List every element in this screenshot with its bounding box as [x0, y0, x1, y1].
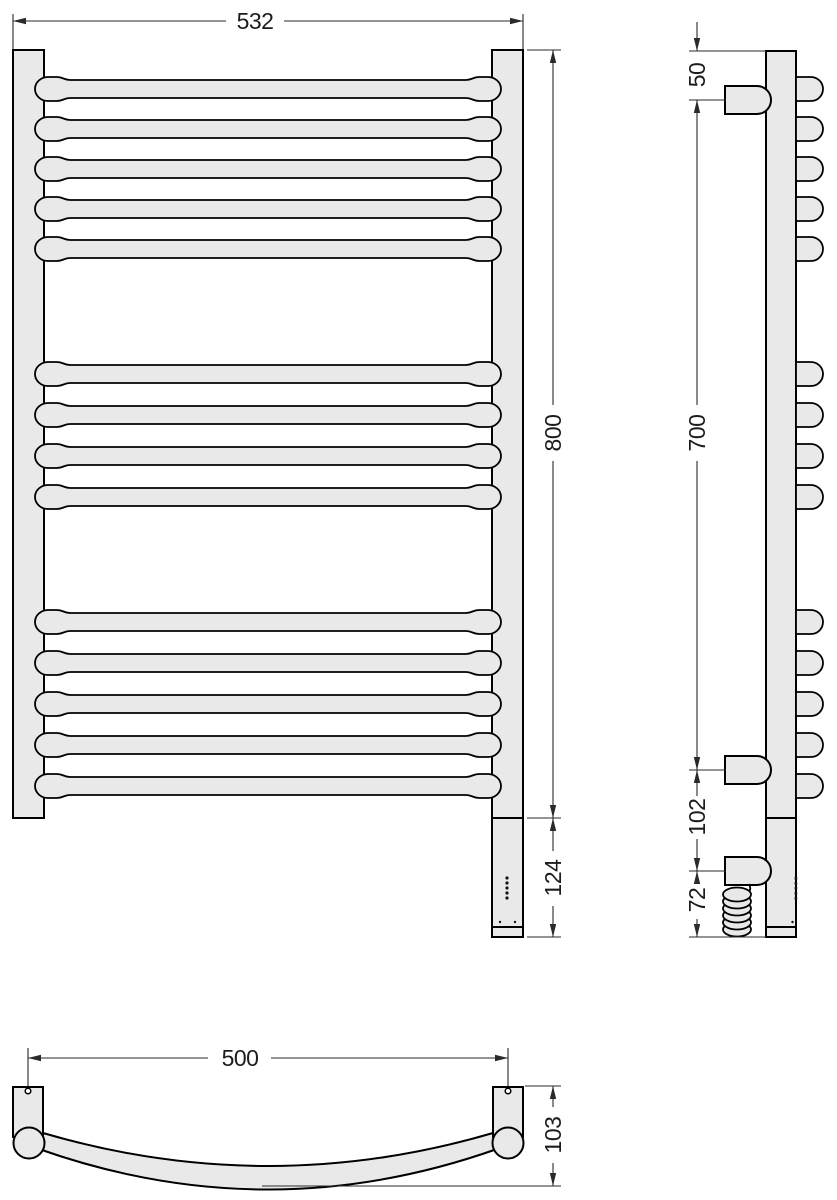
dim-overall-height-label: 800 [540, 415, 566, 452]
dimension-arrow [13, 18, 26, 24]
dim-mounting-span-label: 500 [222, 1045, 259, 1071]
towel-bar-end [796, 610, 823, 634]
dimension-arrow [694, 100, 700, 113]
dimension-arrow [550, 1086, 556, 1099]
dim-bracket-to-bracket-label: 700 [684, 415, 710, 452]
towel-bar-end [796, 77, 823, 101]
dimension-arrow [694, 757, 700, 770]
dimension-arrows [13, 18, 700, 1186]
cable-coil-loop [723, 888, 751, 902]
towel-bar [35, 692, 501, 716]
towel-bar [35, 197, 501, 221]
towel-bar-end [796, 157, 823, 181]
towel-bar [35, 157, 501, 181]
screw-dot [791, 921, 793, 923]
dimension-arrow [495, 1055, 508, 1061]
led-dot-edge [795, 897, 798, 900]
towel-bar-end [796, 197, 823, 221]
led-dot [505, 881, 508, 884]
dimension-arrow [550, 818, 556, 831]
bottom-view [13, 1087, 524, 1190]
towel-bar-end [796, 362, 823, 386]
led-dot-edge [795, 882, 798, 885]
dim-depth-label: 103 [540, 1117, 566, 1154]
towel-bar [35, 774, 501, 798]
technical-drawing: 532 800 124 50 700 102 [0, 0, 837, 1200]
dimension-overall-width: 532 [13, 8, 523, 49]
towel-bar [35, 610, 501, 634]
dimension-arrow [694, 858, 700, 871]
led-dot [505, 896, 508, 899]
towel-bar [35, 733, 501, 757]
wall-bracket [725, 857, 771, 885]
dimension-arrow [550, 50, 556, 63]
side-rail [766, 51, 796, 937]
towel-bar-end [796, 403, 823, 427]
led-dot-edge [795, 887, 798, 890]
dimension-arrow [550, 1173, 556, 1186]
towel-bar [35, 485, 501, 509]
towel-bar [35, 362, 501, 386]
led-dot [505, 891, 508, 894]
towel-bar [35, 651, 501, 675]
dim-heater-section-label: 124 [540, 859, 566, 897]
right-screw-hole [505, 1088, 511, 1094]
towel-bar-end [796, 117, 823, 141]
wall-brackets [725, 86, 771, 885]
towel-bar-end [796, 651, 823, 675]
dimension-overall-height: 800 [527, 50, 566, 818]
dim-overall-width-label: 532 [237, 8, 274, 34]
side-bar-ends [796, 77, 823, 798]
dimension-arrow [694, 770, 700, 783]
towel-bar-end [796, 733, 823, 757]
dimension-arrow [510, 18, 523, 24]
dimension-bracket-to-bracket: 700 [684, 100, 726, 770]
dim-bracket-to-cable-label: 102 [684, 799, 710, 836]
towel-bar-end [796, 485, 823, 509]
left-screw-hole [25, 1088, 31, 1094]
dimension-arrow [550, 924, 556, 937]
dimension-heater-section: 124 [527, 818, 566, 937]
led-dot [505, 886, 508, 889]
screw-dot [514, 921, 516, 923]
wall-bracket [725, 86, 771, 114]
wall-bracket [725, 756, 771, 784]
dim-cable-to-bottom-label: 72 [684, 888, 710, 913]
towel-bar-end [796, 774, 823, 798]
led-dot-edge [795, 892, 798, 895]
screw-dot [499, 921, 501, 923]
towel-bar [35, 444, 501, 468]
dimension-arrow [28, 1055, 41, 1061]
towel-bar [35, 403, 501, 427]
right-rail-section [493, 1128, 524, 1159]
towel-bar-end [796, 237, 823, 261]
dimension-arrow [694, 924, 700, 937]
front-towel-bars [35, 77, 501, 798]
dimension-arrow [550, 805, 556, 818]
towel-bar [35, 117, 501, 141]
led-dot [505, 876, 508, 879]
dimension-arrow [694, 38, 700, 51]
towel-bar-end [796, 444, 823, 468]
bottom-curved-bar [39, 1133, 497, 1190]
side-view [723, 51, 823, 937]
front-view [13, 50, 523, 937]
dimension-arrow [694, 871, 700, 884]
dim-top-to-bracket-label: 50 [684, 63, 710, 88]
power-cable-coil [723, 884, 751, 937]
towel-bar [35, 237, 501, 261]
dimension-bracket-to-cable: 102 [684, 770, 726, 871]
towel-bar-end [796, 692, 823, 716]
drawing-canvas: 532 800 124 50 700 102 [0, 0, 837, 1200]
dimension-mounting-span: 500 [28, 1045, 508, 1086]
led-dot-edge [795, 877, 798, 880]
left-rail-section [14, 1128, 45, 1159]
towel-bar [35, 77, 501, 101]
